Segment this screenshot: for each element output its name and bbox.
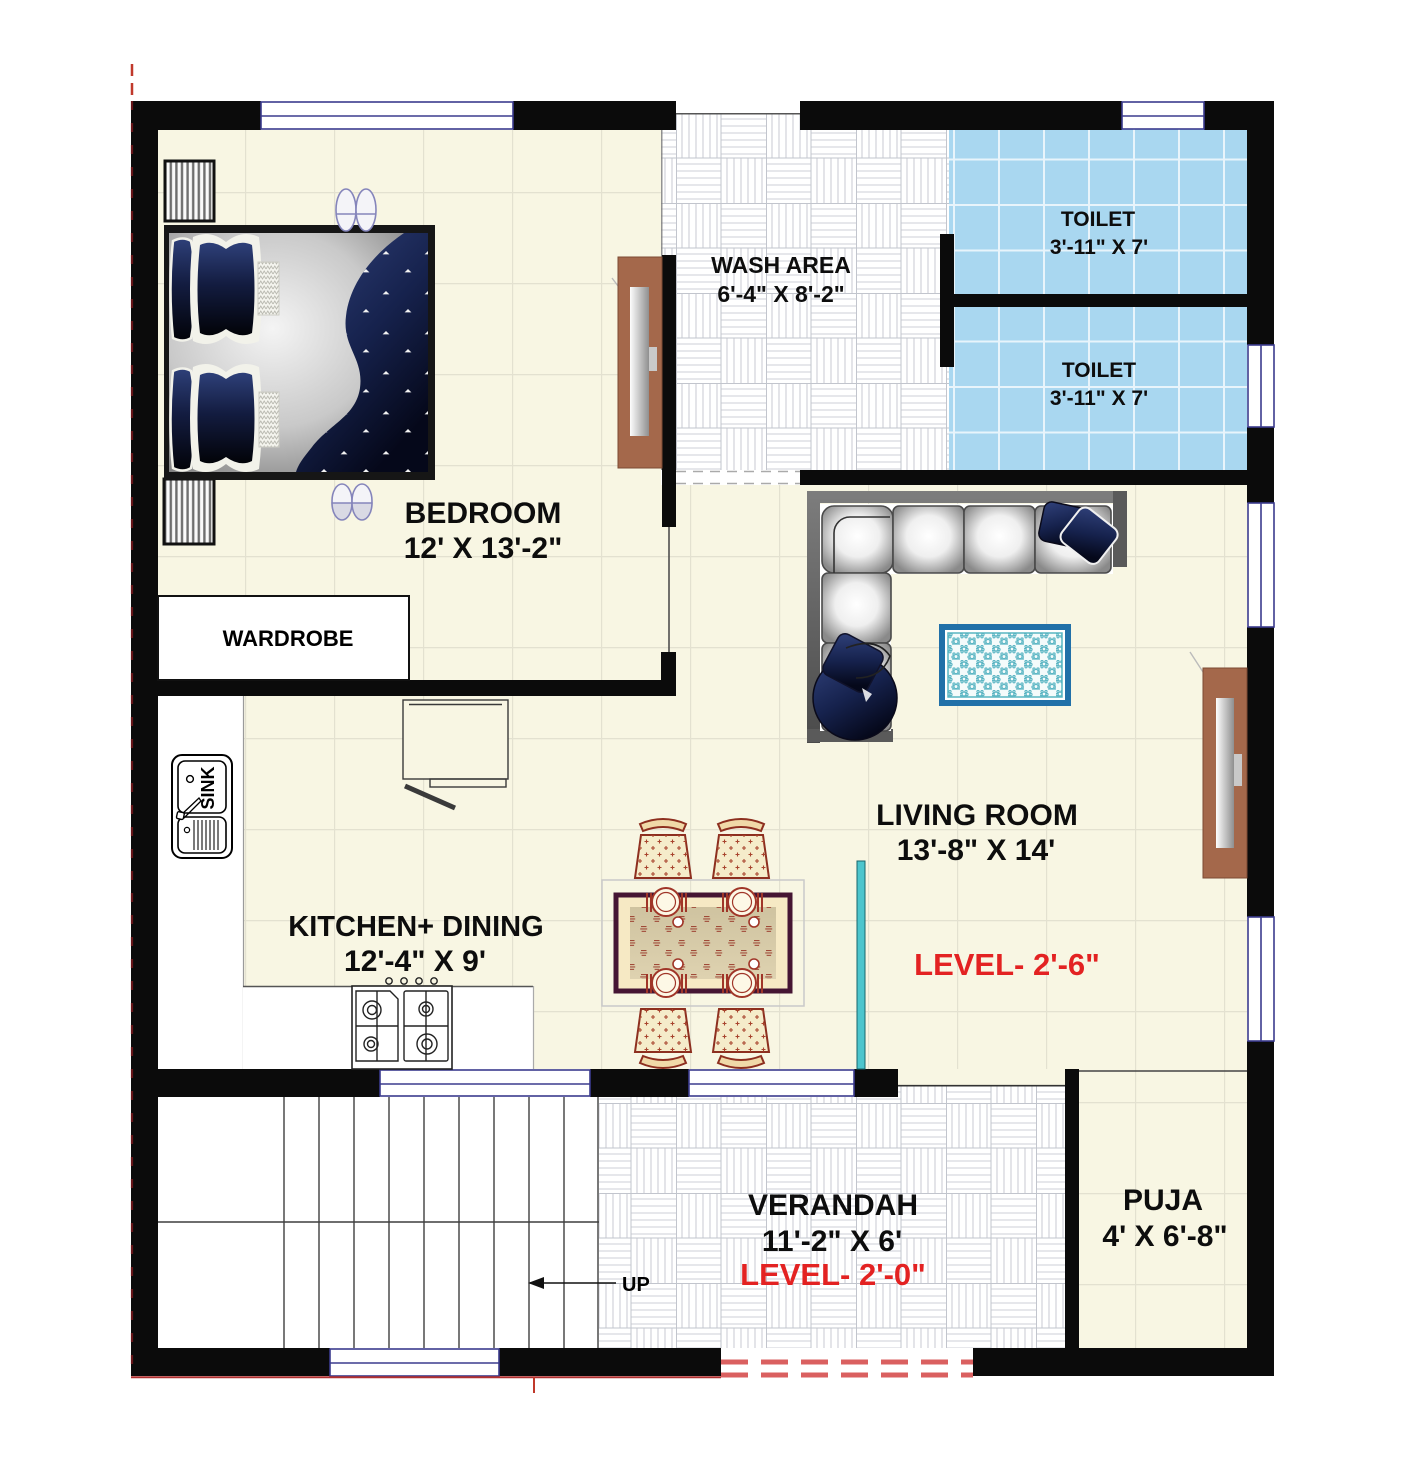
svg-text:4' X 6'-8": 4' X 6'-8" [1102,1220,1227,1253]
svg-text:WARDROBE: WARDROBE [223,626,354,651]
svg-text:LEVEL- 2'-6": LEVEL- 2'-6" [914,947,1100,982]
svg-text:LEVEL- 2'-0": LEVEL- 2'-0" [740,1257,926,1292]
svg-text:11'-2" X 6': 11'-2" X 6' [762,1225,902,1258]
svg-text:12'-4" X 9': 12'-4" X 9' [344,945,486,978]
svg-text:6'-4" X 8'-2": 6'-4" X 8'-2" [717,281,844,307]
svg-text:3'-11" X 7': 3'-11" X 7' [1050,236,1148,259]
svg-text:TOILET: TOILET [1062,359,1136,382]
svg-text:WASH AREA: WASH AREA [711,252,851,278]
svg-text:UP: UP [622,1274,650,1296]
svg-text:13'-8" X 14': 13'-8" X 14' [897,834,1056,867]
svg-text:KITCHEN+ DINING: KITCHEN+ DINING [288,911,543,943]
svg-text:LIVING ROOM: LIVING ROOM [876,799,1078,832]
svg-text:VERANDAH: VERANDAH [748,1189,918,1222]
svg-text:TOILET: TOILET [1061,208,1135,231]
svg-text:3'-11" X 7': 3'-11" X 7' [1050,387,1148,410]
svg-text:BEDROOM: BEDROOM [405,497,562,530]
svg-text:SINK: SINK [198,766,218,809]
svg-text:12' X 13'-2": 12' X 13'-2" [404,532,563,565]
svg-text:PUJA: PUJA [1123,1184,1203,1217]
